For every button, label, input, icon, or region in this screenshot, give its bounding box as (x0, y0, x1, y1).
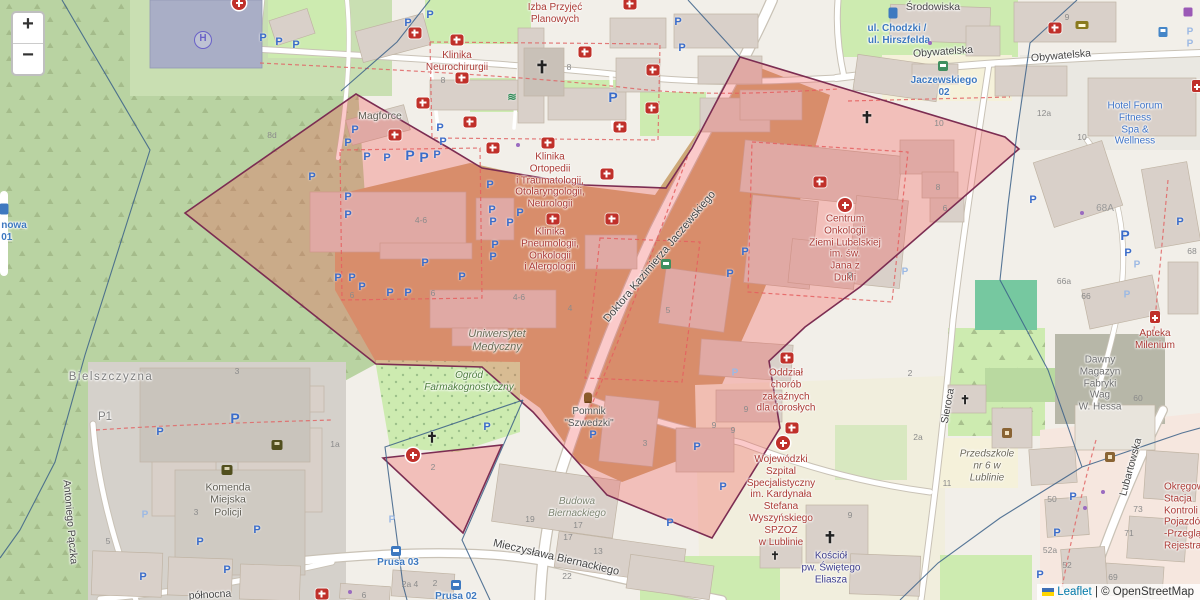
attribution-separator: | (1095, 586, 1098, 598)
attribution: Leaflet | © OpenStreetMap (1037, 584, 1200, 600)
osm-link[interactable]: © OpenStreetMap (1101, 586, 1194, 598)
map-canvas[interactable]: Środowiska Obywatelska Obywatelska Dokto… (0, 0, 1200, 600)
map-tiles (0, 0, 1200, 600)
zoom-out-button[interactable]: − (13, 44, 43, 74)
zoom-in-button[interactable]: + (13, 13, 43, 44)
leaflet-link[interactable]: Leaflet (1057, 586, 1092, 598)
zoom-control: + − (11, 11, 45, 76)
ukraine-flag-icon (1042, 588, 1054, 596)
